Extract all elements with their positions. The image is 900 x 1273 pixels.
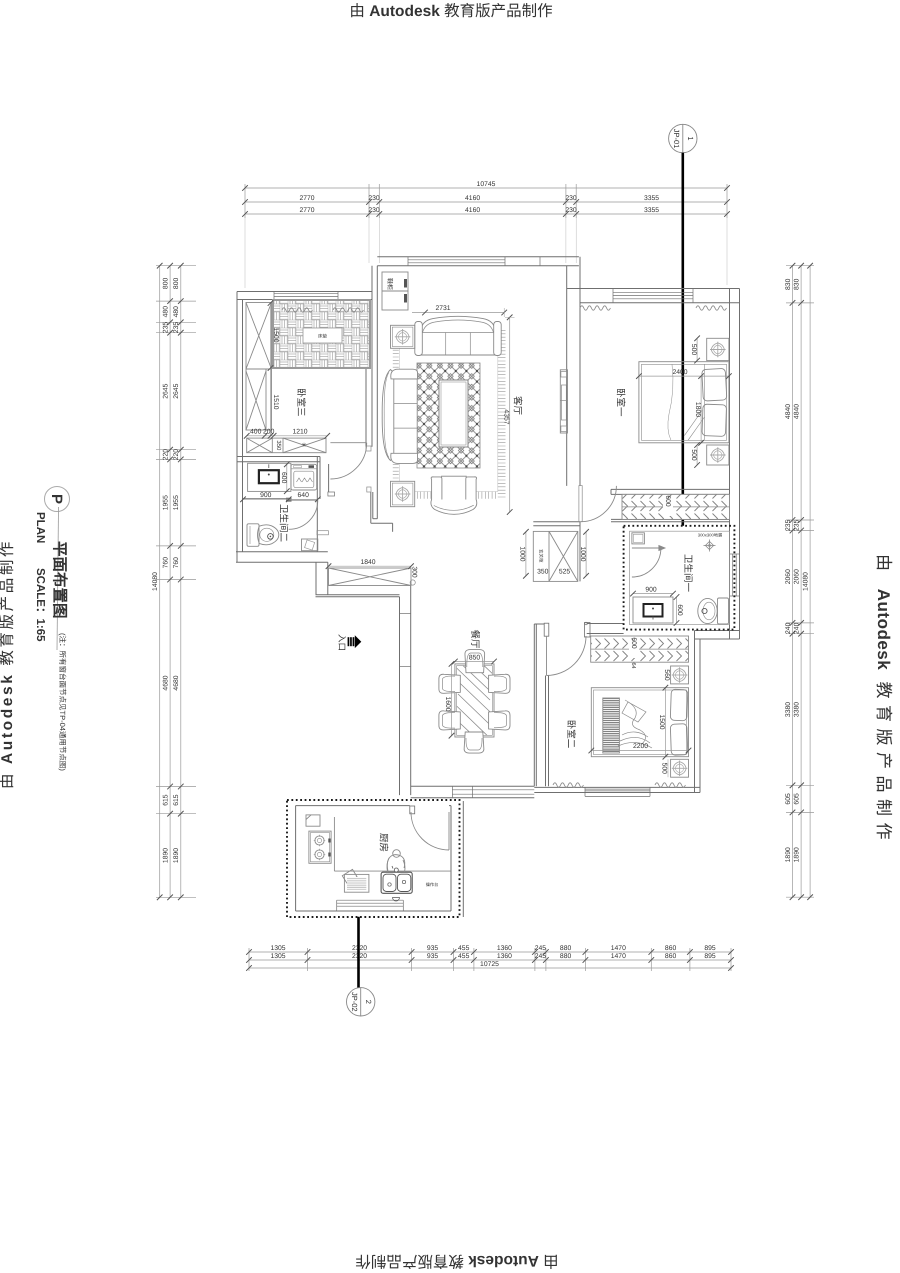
svg-text:1500: 1500 <box>658 714 665 729</box>
svg-text:2731: 2731 <box>435 305 450 312</box>
svg-text:900: 900 <box>645 586 657 593</box>
svg-text:2645: 2645 <box>173 383 180 398</box>
svg-text:600: 600 <box>630 637 637 649</box>
svg-text:935: 935 <box>427 945 439 952</box>
svg-text:1: 1 <box>686 136 695 140</box>
svg-text:455: 455 <box>458 945 470 952</box>
svg-text:由 Autodesk 教育版产品制作: 由 Autodesk 教育版产品制作 <box>0 539 16 789</box>
svg-text:480: 480 <box>173 306 180 318</box>
svg-text:1890: 1890 <box>785 847 792 862</box>
svg-text:560: 560 <box>663 669 670 681</box>
svg-text:800: 800 <box>163 278 170 290</box>
svg-text:1305: 1305 <box>270 953 285 960</box>
svg-text:880: 880 <box>560 953 572 960</box>
svg-text:455: 455 <box>458 953 470 960</box>
svg-text:4840: 4840 <box>794 404 801 419</box>
svg-text:1470: 1470 <box>611 953 626 960</box>
svg-text:880: 880 <box>560 945 572 952</box>
svg-text:245: 245 <box>535 953 547 960</box>
svg-text:1305: 1305 <box>270 945 285 952</box>
svg-text:(注：所有窗台面节点见TP-04通用节点图): (注：所有窗台面节点见TP-04通用节点图) <box>58 633 67 771</box>
svg-text:235: 235 <box>794 519 801 531</box>
svg-text:850: 850 <box>469 654 481 661</box>
svg-text:605: 605 <box>785 793 792 805</box>
svg-text:235: 235 <box>173 322 180 334</box>
svg-text:1890: 1890 <box>173 848 180 863</box>
svg-text:床垫: 床垫 <box>318 334 327 339</box>
svg-text:操作台: 操作台 <box>426 882 439 887</box>
svg-text:1600: 1600 <box>444 696 451 711</box>
svg-text:2: 2 <box>364 1000 373 1004</box>
svg-text:餐厅: 餐厅 <box>469 630 480 650</box>
svg-text:300: 300 <box>411 566 418 578</box>
svg-text:64: 64 <box>630 662 636 668</box>
svg-text:245: 245 <box>535 945 547 952</box>
svg-text:2060: 2060 <box>785 569 792 584</box>
svg-text:14080: 14080 <box>803 572 810 591</box>
svg-text:230: 230 <box>368 195 380 202</box>
svg-text:P: P <box>48 494 65 504</box>
svg-text:600: 600 <box>664 495 671 507</box>
svg-text:1955: 1955 <box>173 495 180 510</box>
svg-text:厨房: 厨房 <box>377 833 388 852</box>
svg-text:2400: 2400 <box>672 369 687 376</box>
svg-text:由 Autodesk 教育版产品制作: 由 Autodesk 教育版产品制作 <box>874 554 893 846</box>
svg-text:1890: 1890 <box>794 847 801 862</box>
svg-text:350: 350 <box>537 569 549 576</box>
svg-text:JP-01: JP-01 <box>672 129 681 149</box>
svg-text:1510: 1510 <box>272 394 279 409</box>
svg-text:入口: 入口 <box>337 634 347 651</box>
svg-text:平面布置图: 平面布置图 <box>51 541 69 619</box>
svg-text:615: 615 <box>173 794 180 806</box>
svg-text:4160: 4160 <box>465 195 480 202</box>
svg-text:2645: 2645 <box>163 383 170 398</box>
svg-text:600: 600 <box>676 604 683 616</box>
svg-text:卫生间二: 卫生间二 <box>277 504 288 542</box>
svg-text:1210: 1210 <box>292 429 307 436</box>
svg-text:1840: 1840 <box>360 559 375 566</box>
svg-text:900: 900 <box>260 492 272 499</box>
svg-text:640: 640 <box>298 492 310 499</box>
svg-text:1000: 1000 <box>579 546 586 561</box>
svg-text:500: 500 <box>690 344 697 356</box>
svg-text:卧室二: 卧室二 <box>565 720 577 749</box>
svg-text:230: 230 <box>565 195 577 202</box>
svg-text:4840: 4840 <box>785 404 792 419</box>
svg-text:350: 350 <box>275 440 282 451</box>
svg-text:2200: 2200 <box>633 743 648 750</box>
svg-text:3380: 3380 <box>794 702 801 717</box>
svg-text:4357: 4357 <box>502 409 509 424</box>
svg-text:615: 615 <box>163 794 170 806</box>
svg-text:600: 600 <box>280 472 287 484</box>
svg-text:200: 200 <box>263 429 275 436</box>
svg-text:由 Autodesk 教育版产品制作: 由 Autodesk 教育版产品制作 <box>355 1252 558 1270</box>
svg-text:10745: 10745 <box>477 181 496 188</box>
svg-text:1000: 1000 <box>519 546 526 561</box>
svg-text:14080: 14080 <box>152 572 159 591</box>
svg-text:1890: 1890 <box>163 848 170 863</box>
svg-text:4160: 4160 <box>465 207 480 214</box>
svg-text:SCALE：1:65: SCALE：1:65 <box>34 568 46 642</box>
svg-text:4680: 4680 <box>163 675 170 690</box>
svg-text:1360: 1360 <box>497 945 512 952</box>
svg-text:800: 800 <box>173 278 180 290</box>
svg-text:2770: 2770 <box>299 195 314 202</box>
svg-text:500: 500 <box>690 449 697 461</box>
svg-text:1470: 1470 <box>611 945 626 952</box>
svg-text:1955: 1955 <box>163 495 170 510</box>
svg-text:760: 760 <box>173 557 180 569</box>
svg-text:3355: 3355 <box>644 207 659 214</box>
svg-text:由 Autodesk 教育版产品制作: 由 Autodesk 教育版产品制作 <box>349 2 552 20</box>
svg-text:500: 500 <box>660 763 667 775</box>
svg-text:1800: 1800 <box>694 402 701 417</box>
svg-text:1500: 1500 <box>272 327 279 342</box>
svg-text:240: 240 <box>785 622 792 634</box>
svg-text:860: 860 <box>665 945 677 952</box>
svg-text:895: 895 <box>704 953 716 960</box>
svg-text:JP-02: JP-02 <box>350 992 359 1012</box>
svg-text:2060: 2060 <box>794 569 801 584</box>
svg-text:300x300地漏: 300x300地漏 <box>698 533 722 538</box>
svg-text:玄关柜: 玄关柜 <box>539 549 544 563</box>
svg-text:卧室一: 卧室一 <box>615 388 627 417</box>
svg-text:230: 230 <box>565 207 577 214</box>
svg-text:830: 830 <box>785 278 792 290</box>
svg-text:400: 400 <box>250 429 262 436</box>
svg-text:935: 935 <box>427 953 439 960</box>
svg-text:525: 525 <box>559 569 571 576</box>
svg-text:235: 235 <box>163 322 170 334</box>
svg-text:4680: 4680 <box>173 675 180 690</box>
svg-text:卫生间一: 卫生间一 <box>682 554 693 593</box>
svg-text:10725: 10725 <box>480 961 499 968</box>
svg-text:PLAN: PLAN <box>34 512 46 543</box>
svg-text:220: 220 <box>163 449 170 461</box>
svg-text:760: 760 <box>163 557 170 569</box>
svg-text:✳: ✳ <box>301 442 306 449</box>
svg-text:鞋柜: 鞋柜 <box>386 278 394 290</box>
svg-text:230: 230 <box>368 207 380 214</box>
svg-text:480: 480 <box>163 306 170 318</box>
svg-text:240: 240 <box>794 622 801 634</box>
svg-text:卧室三: 卧室三 <box>295 388 307 417</box>
svg-text:3355: 3355 <box>644 195 659 202</box>
svg-text:830: 830 <box>794 278 801 290</box>
svg-text:3380: 3380 <box>785 702 792 717</box>
svg-text:客厅: 客厅 <box>512 396 524 416</box>
svg-text:2770: 2770 <box>299 207 314 214</box>
svg-text:895: 895 <box>704 945 716 952</box>
svg-text:605: 605 <box>794 793 801 805</box>
svg-text:1360: 1360 <box>497 953 512 960</box>
svg-text:860: 860 <box>665 953 677 960</box>
svg-text:220: 220 <box>173 449 180 461</box>
svg-text:235: 235 <box>785 519 792 531</box>
